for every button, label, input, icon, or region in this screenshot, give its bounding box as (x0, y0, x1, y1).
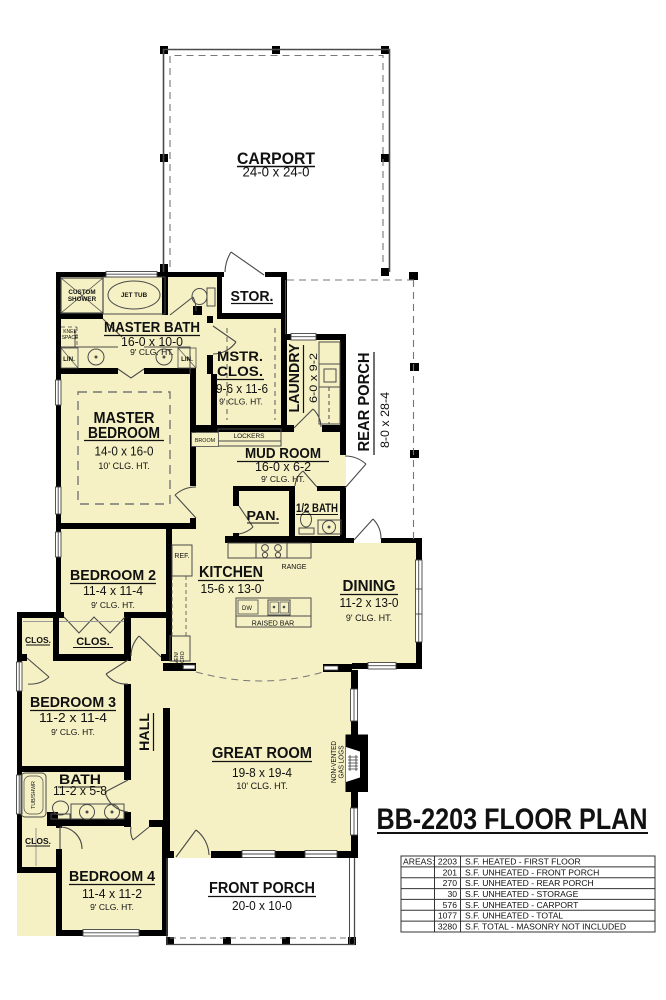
svg-text:SHOWER: SHOWER (68, 296, 97, 303)
svg-text:BEDROOM 4: BEDROOM 4 (69, 868, 156, 885)
svg-text:CLOS.: CLOS. (76, 636, 110, 648)
svg-text:11-2 x 13-0: 11-2 x 13-0 (340, 595, 399, 610)
svg-text:S.F. UNHEATED - TOTAL: S.F. UNHEATED - TOTAL (465, 911, 563, 921)
svg-text:9' CLG. HT.: 9' CLG. HT. (219, 397, 263, 407)
svg-text:576: 576 (443, 900, 458, 910)
svg-text:LIN.: LIN. (181, 356, 193, 363)
svg-text:11-2 x 11-4: 11-2 x 11-4 (39, 711, 107, 725)
svg-text:3280: 3280 (438, 922, 457, 932)
svg-text:S.F. UNHEATED - CARPORT: S.F. UNHEATED - CARPORT (465, 900, 579, 910)
svg-text:LIN.: LIN. (63, 356, 75, 363)
svg-text:S.F. UNHEATED - STORAGE: S.F. UNHEATED - STORAGE (465, 889, 579, 899)
svg-text:GAS LOGS: GAS LOGS (337, 745, 346, 778)
svg-text:11-4 x 11-4: 11-4 x 11-4 (83, 584, 143, 598)
svg-text:24-0 x 24-0: 24-0 x 24-0 (243, 165, 310, 180)
svg-text:15-6 x 13-0: 15-6 x 13-0 (201, 581, 262, 596)
svg-text:DINING: DINING (343, 578, 396, 595)
svg-text:S.F. UNHEATED - FRONT PORCH: S.F. UNHEATED - FRONT PORCH (465, 867, 599, 877)
svg-text:16-0 x 6-2: 16-0 x 6-2 (255, 460, 311, 474)
svg-text:BROOM: BROOM (195, 438, 216, 444)
svg-text:RAISED BAR: RAISED BAR (252, 621, 294, 628)
svg-text:1077: 1077 (438, 911, 457, 921)
svg-text:AREAS:: AREAS: (403, 857, 435, 867)
svg-text:JET TUB: JET TUB (121, 292, 148, 299)
svg-text:14-0 x 16-0: 14-0 x 16-0 (95, 444, 154, 459)
svg-text:20-0 x 10-0: 20-0 x 10-0 (232, 898, 292, 913)
svg-text:9' CLG. HT.: 9' CLG. HT. (91, 600, 135, 610)
svg-text:HALL: HALL (136, 713, 152, 751)
svg-text:10' CLG. HT.: 10' CLG. HT. (236, 781, 287, 791)
svg-text:9' CLG. HT.: 9' CLG. HT. (261, 474, 305, 484)
svg-text:GREAT ROOM: GREAT ROOM (212, 745, 312, 762)
svg-text:8-0 x 28-4: 8-0 x 28-4 (380, 391, 392, 448)
svg-text:CLOS.: CLOS. (25, 836, 51, 846)
svg-text:S.F. HEATED - FIRST FLOOR: S.F. HEATED - FIRST FLOOR (465, 857, 581, 867)
svg-text:PAN.: PAN. (247, 508, 280, 523)
svg-text:9-6 x 11-6: 9-6 x 11-6 (216, 382, 268, 396)
svg-text:1/2 BATH: 1/2 BATH (296, 503, 338, 515)
svg-text:BEDROOM 2: BEDROOM 2 (70, 567, 156, 584)
svg-text:DW: DW (242, 606, 252, 612)
svg-text:CLOS.: CLOS. (25, 635, 51, 645)
svg-text:30: 30 (447, 889, 457, 899)
svg-text:CUSTOM: CUSTOM (68, 289, 95, 296)
svg-text:2203: 2203 (438, 857, 457, 867)
svg-text:9' CLG. HT.: 9' CLG. HT. (346, 613, 392, 623)
svg-text:LOCKERS: LOCKERS (233, 433, 265, 440)
svg-text:201: 201 (443, 867, 458, 877)
svg-text:11-4 x 11-2: 11-4 x 11-2 (82, 887, 142, 901)
svg-text:11-2 x 5-8: 11-2 x 5-8 (53, 784, 107, 798)
svg-text:9' CLG. HT.: 9' CLG. HT. (130, 347, 174, 357)
svg-text:STOR.: STOR. (231, 288, 274, 305)
svg-text:FRONT PORCH: FRONT PORCH (209, 880, 315, 897)
svg-text:BEDROOM 3: BEDROOM 3 (30, 694, 116, 711)
svg-text:LAUNDRY: LAUNDRY (287, 343, 303, 412)
svg-text:S.F. TOTAL - MASONRY NOT INCLU: S.F. TOTAL - MASONRY NOT INCLUDED (465, 922, 626, 932)
svg-text:MICRO: MICRO (180, 651, 186, 668)
svg-text:SPACE: SPACE (62, 335, 79, 341)
svg-text:KITCHEN: KITCHEN (199, 564, 263, 581)
svg-text:REF.: REF. (174, 553, 189, 560)
svg-text:REAR PORCH: REAR PORCH (356, 353, 373, 452)
svg-text:BB-2203 FLOOR PLAN: BB-2203 FLOOR PLAN (377, 803, 648, 836)
svg-text:6-0 x 9-2: 6-0 x 9-2 (308, 353, 320, 403)
svg-text:BEDROOM: BEDROOM (88, 425, 160, 442)
svg-text:19-8 x 19-4: 19-8 x 19-4 (232, 765, 292, 780)
svg-text:CLOS.: CLOS. (217, 363, 263, 379)
svg-text:9' CLG. HT.: 9' CLG. HT. (90, 902, 134, 912)
svg-text:TUB/SHWR: TUB/SHWR (31, 781, 37, 809)
svg-text:10' CLG. HT.: 10' CLG. HT. (98, 461, 149, 471)
svg-text:RANGE: RANGE (282, 564, 307, 571)
svg-text:S.F. UNHEATED - REAR PORCH: S.F. UNHEATED - REAR PORCH (465, 878, 594, 888)
svg-text:270: 270 (443, 878, 458, 888)
svg-text:MSTR.: MSTR. (217, 348, 263, 364)
svg-text:9' CLG. HT.: 9' CLG. HT. (51, 727, 95, 737)
